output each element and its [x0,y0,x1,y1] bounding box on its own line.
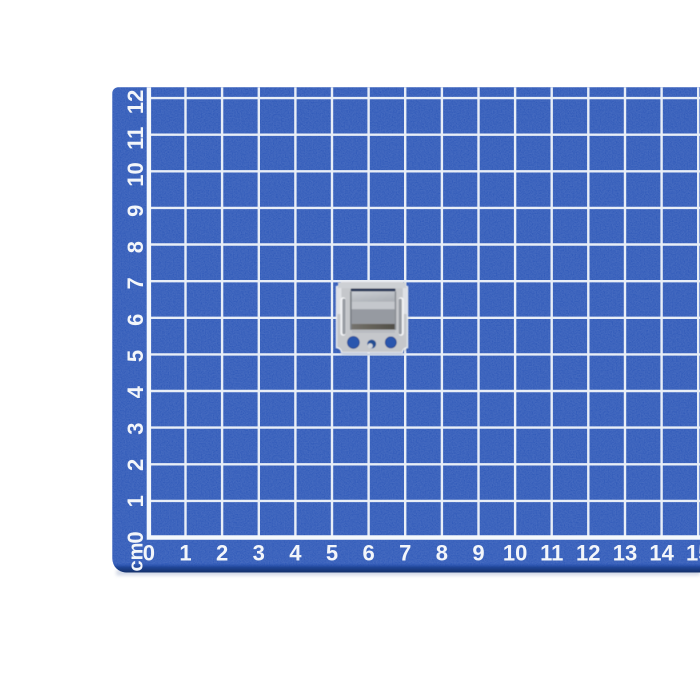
svg-text:3: 3 [123,422,148,434]
svg-text:8: 8 [436,541,448,566]
svg-text:6: 6 [123,314,148,326]
svg-text:1: 1 [123,495,148,507]
svg-text:10: 10 [503,541,527,566]
svg-text:9: 9 [472,541,484,566]
svg-text:3: 3 [253,541,265,566]
svg-text:4: 4 [123,385,148,398]
svg-text:5: 5 [326,541,338,566]
svg-text:cm: cm [126,543,148,572]
svg-text:9: 9 [123,205,148,217]
svg-text:12: 12 [576,541,600,566]
svg-text:11: 11 [540,541,563,566]
svg-text:15: 15 [686,541,700,566]
svg-text:6: 6 [362,541,374,566]
svg-text:13: 13 [613,541,637,566]
svg-text:12: 12 [123,90,148,114]
svg-text:0: 0 [123,531,148,543]
svg-text:11: 11 [123,127,148,150]
svg-text:4: 4 [289,541,302,566]
svg-text:2: 2 [216,541,228,566]
svg-text:2: 2 [123,459,148,471]
svg-text:7: 7 [123,277,148,289]
svg-text:1: 1 [179,541,191,566]
svg-text:5: 5 [123,350,148,362]
svg-text:14: 14 [649,541,674,566]
svg-text:8: 8 [123,241,148,253]
svg-text:7: 7 [399,541,411,566]
svg-text:10: 10 [123,162,148,186]
